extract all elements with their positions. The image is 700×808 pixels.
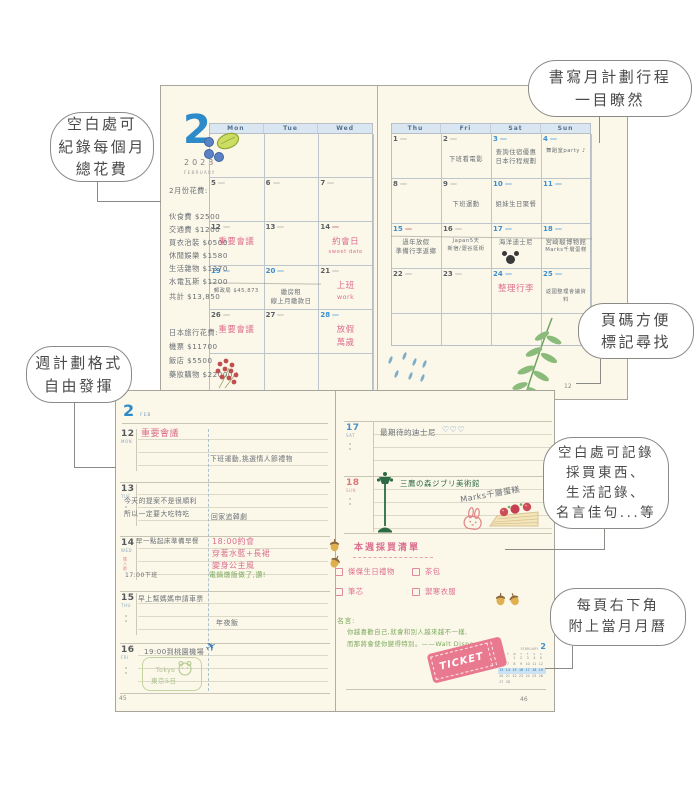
cell-date-row: 24 [493,270,539,278]
monthly-cell: 25返國整理會議資料 [541,269,592,314]
monthly-cell: 24整理行李 [491,269,542,314]
handwritten-note: 早一點起床準備早餐 [136,538,199,546]
weekly-header-rule [122,423,328,424]
raindrops-doodle [383,350,435,386]
handwritten-note: 準備行李返鄉 [393,247,439,256]
callout-connector [97,182,98,202]
date-number: 18 [543,225,553,233]
cell-notes: 姐妹生日聚餐 [493,200,539,209]
callout-connector [505,549,605,550]
handwritten-note: 舞蹈室party ♪ [543,148,589,156]
cell-date-row: 8 [393,180,439,188]
handwritten-note: 下班看電影 [443,155,489,164]
ruled-line [374,489,552,490]
red-flower-cluster-doodle [211,358,249,392]
date-number: 21 [320,267,330,275]
cell-date-row: 16 [443,225,489,233]
monthly-cell: 1 [391,134,442,179]
date-number: 8 [393,180,398,188]
calendar-header-cell: Wed [318,123,373,133]
cell-date-row: 1 [393,135,439,143]
date-number: 11 [543,180,553,188]
monthly-cell [391,314,442,346]
callout-line: 採買東西、 [566,463,646,483]
date-number: 26 [211,311,221,319]
date-lunar-scribble [505,273,512,275]
monthly-cell: 23 [441,269,492,314]
callout-connector [97,201,161,202]
spread-gutter [377,86,378,399]
callout-line: 空白處可 [67,113,137,136]
date-number: 5 [211,179,216,187]
date-number: 7 [320,179,325,187]
cell-date-row: 6 [266,179,317,187]
date-lunar-scribble [277,314,284,316]
callout-mini-calendar: 每頁右下角附上當月月曆 [550,588,686,646]
handwritten-note: 返國整理會議資料 [543,289,589,305]
monthly-cell [441,314,492,346]
row-separator [120,591,330,592]
handwritten-note: 變身公主風 [212,561,255,571]
calendar-header-cell: Tue [264,123,319,133]
row-separator [120,693,330,694]
handwritten-note: 下班運動,挑選情人節禮物 [210,455,293,463]
handwritten-note: 過年放假 [393,238,439,247]
date-column-line [136,429,137,471]
callout-line: 標記尋找 [601,331,671,354]
mini-calendar-day [538,680,545,686]
monthly-cell: 7 [318,178,374,222]
raindrop [394,370,400,379]
date-lunar-scribble [450,138,457,140]
handwritten-note: 海洋迪士尼 [493,238,539,247]
row-separator [120,482,330,483]
date-column-line [136,593,137,635]
cell-date-row: 10 [493,180,539,188]
date-lunar-scribble [223,226,230,228]
cell-notes: 約會日sweet date [320,236,371,257]
callout-line: 每頁右下角 [577,596,660,617]
shopping-title-underline [353,557,433,558]
handwritten-note: 重要會議 [211,324,262,337]
ruled-line [138,465,328,466]
quote-label: 名言: [337,617,355,625]
date-lunar-scribble [505,183,512,185]
date-lunar-scribble [405,228,412,230]
handwritten-note: 重要會議 [141,429,179,440]
day-sub-scribble [125,506,127,508]
callout-monthly-plan: 書寫月計劃行程一目瞭然 [528,60,692,117]
handwritten-note: ♡♡♡ [442,425,465,435]
ruled-line [374,460,552,461]
cell-date-row: 26 [211,311,262,319]
day-sub-scribble [349,503,351,505]
cell-notes: 下班看電影 [443,155,489,164]
handwritten-note: 整理行李 [493,283,539,296]
callout-connector [74,467,116,468]
shopping-item-label: 禦寒衣服 [425,588,456,597]
handwritten-note: 三鷹の森ジブリ美術館 [400,479,480,488]
date-lunar-scribble [450,183,457,185]
tokyo-trip-frame [142,657,202,691]
date-lunar-scribble [218,182,225,184]
cell-notes: 宮崎駿博物館Marks千層蛋糕 [543,238,589,255]
cell-date-row: 22 [393,270,439,278]
day-sub-scribble [125,667,127,669]
monthly-cell [264,134,320,178]
monthly-cell: 17海洋迪士尼 [491,224,542,269]
monthly-cell: 28放假萬歲 [318,310,374,354]
monthly-cell: 20繳房租線上月繳款日 [264,266,320,310]
date-number: 28 [320,311,330,319]
handwritten-note: 電鍋燉飯做了,讚! [209,571,266,579]
mini-calendar-day: 28 [505,680,512,686]
cell-date-row: 21 [320,267,371,275]
callout-connector [604,529,605,550]
raindrop [422,360,428,369]
monthly-cell: 2下班看電影 [441,134,492,179]
handwritten-note: 姐妹生日聚餐 [493,200,539,209]
handwritten-note: 萬歲 [320,337,371,350]
date-lunar-scribble [277,270,284,272]
expense-note: 休閒娛樂 $1580 [169,252,228,261]
monthly-spread-page: 2 2023 FEBRUARY 12 MonTueWed56712重要會議131… [160,85,628,400]
handwritten-note: 17:00下班 [125,572,158,579]
mickey-head-icon [501,251,521,265]
date-number: 25 [543,270,553,278]
cell-date-row: 3 [493,135,539,143]
date-number: 17 [493,225,503,233]
monthly-cell: 16Japan5天新宿/澀谷逛街 [441,224,492,269]
cell-notes: 過年放假準備行李返鄉 [393,238,439,257]
day-sub-scribble [125,620,127,622]
handwritten-note: 所以一定要大吃特吃 [124,510,190,518]
date-lunar-scribble [273,182,280,184]
expense-note: 生活雜物 $1370 [169,265,228,274]
cell-date-row: 5 [211,179,262,187]
handwritten-note: 上班 [320,280,371,293]
shopping-checkbox [335,588,343,596]
callout-line: 空白處可記錄 [558,443,654,463]
cell-date-row: 2 [443,135,489,143]
date-number: 15 [393,225,403,233]
raindrop [388,356,394,365]
date-lunar-scribble [277,226,284,228]
handwritten-note: 約會日 [320,236,371,249]
expense-note: 日本旅行花費: [169,329,218,338]
acorns-doodle [328,537,344,569]
monthly-cell: 8 [391,179,442,224]
monthly-cell: 6 [264,178,320,222]
date-lunar-scribble [455,273,462,275]
handwritten-note: 18:00約會 [212,537,255,547]
weekly-day-label: SUN [346,489,356,494]
shopping-list-title: 本週採買清單 [354,543,420,554]
date-lunar-scribble [332,226,339,228]
callout-line: 附上當月月曆 [569,617,668,638]
monthly-cell: 14約會日sweet date [318,222,374,266]
date-lunar-scribble [332,314,339,316]
date-number: 2 [443,135,448,143]
ruled-line [138,452,328,453]
row-separator [344,421,552,422]
monthly-cell: 3查詢住宿優惠日本行程規劃 [491,134,542,179]
handwritten-note: 線上月繳款日 [266,297,317,306]
ruled-line [138,629,328,630]
cell-date-row: 9 [443,180,489,188]
handwritten-note: Marks千層蛋糕 [543,247,589,255]
handwritten-note: 回家追韓劇 [211,513,247,521]
callout-connector [600,359,601,384]
expense-note: 交通費 $1200 [169,226,220,235]
date-lunar-scribble [455,228,462,230]
day-sub-scribble [349,443,351,445]
date-lunar-scribble [500,138,507,140]
monthly-cell: 9下班運動 [441,179,492,224]
blueberries-and-lime-doodle [201,129,249,169]
mini-calendar-week-row: 2728 [498,680,546,686]
cell-date-row: 17 [493,225,539,233]
expense-note: 飯店 $5500 [169,357,213,366]
weekly-month-label: FEB [140,413,152,418]
day-sub-scribble [349,498,351,500]
expense-note: 買衣治裝 $0500 [169,239,228,248]
date-lunar-scribble [332,270,339,272]
date-lunar-scribble [400,138,407,140]
handwritten-note: 查詢住宿優惠 [493,148,539,157]
date-lunar-scribble [400,183,407,185]
cell-date-row: 14 [320,223,371,231]
ruled-line [138,616,328,617]
cell-date-row: 7 [320,179,371,187]
day-sub-scribble [125,615,127,617]
handwritten-note: 新宿/澀谷逛街 [443,246,489,254]
mini-calendar-day [524,680,531,686]
bottom-margin-line [346,689,546,690]
acorns-doodle [494,591,522,609]
date-number: 3 [493,135,498,143]
calendar-header-cell: Fri [441,123,491,133]
cell-date-row: 4 [543,135,589,143]
handwritten-note: work [320,293,371,302]
cell-notes: 放假萬歲 [320,324,371,350]
monthly-cell: 22 [391,269,442,314]
callout-blank-space: 空白處可記錄採買東西、生活記錄、名言佳句...等 [543,437,669,529]
monthly-cell: 18宮崎駿博物館Marks千層蛋糕 [541,224,592,269]
calendar-header-cell: Thu [391,123,441,133]
monthly-cell: 15過年放假準備行李返鄉 [391,224,442,269]
monthly-cell [318,354,374,391]
handwritten-note: 繳房租 [266,288,317,297]
cell-notes: 上班work [320,280,371,302]
weekly-day-label: THU [121,604,131,609]
ruled-line [138,507,328,508]
cell-date-row: 25 [543,270,589,278]
shopping-item-label: 茶包 [425,568,441,577]
cell-date-row: 27 [266,311,317,319]
mini-calendar-header: FEBRUARY2 [498,643,546,651]
mini-calendar-day [511,680,518,686]
weekly-left-page-number: 45 [119,695,127,702]
cell-notes: 重要會議 [211,324,262,337]
weekly-day-sublabel: 情人節 [123,557,128,571]
cell-date-row: 15 [393,225,439,233]
ruled-line [138,494,328,495]
day-sub-scribble [349,448,351,450]
cell-notes: 繳房租線上月繳款日 [266,288,317,307]
callout-line: 一目瞭然 [575,89,645,112]
date-number: 16 [443,225,453,233]
cell-date-row: 20 [266,267,317,275]
airplane-icon: ✈ [203,638,220,656]
callout-line: 自由發揮 [44,375,114,398]
callout-line: 書寫月計劃行程 [549,66,672,89]
weekly-day-label: MON [121,440,132,445]
handwritten-note: 年夜飯 [216,619,239,627]
date-column-line [373,422,374,532]
date-lunar-scribble [405,273,412,275]
date-number: 4 [543,135,548,143]
cell-date-row: 23 [443,270,489,278]
callout-line: 生活記錄、 [566,483,646,503]
date-lunar-scribble [555,228,562,230]
date-lunar-scribble [327,182,334,184]
weekly-month-number: 2 [123,403,134,419]
calendar-header-cell: Sun [541,123,591,133]
cell-notes: 舞蹈室party ♪ [543,148,589,156]
raindrop [420,374,426,383]
date-lunar-scribble [223,314,230,316]
mini-calendar-month-number: 2 [540,643,546,651]
date-number: 10 [493,180,503,188]
cell-date-row: 28 [320,311,371,319]
weekly-day-label: SAT [346,434,355,439]
callout-page-number: 頁碼方便標記尋找 [578,303,694,359]
callout-connector [545,668,573,669]
handwritten-note: 穿著水藍+長裙 [212,549,270,559]
monthly-cell: 10姐妹生日聚餐 [491,179,542,224]
calendar-header-row: ThuFriSatSun [391,123,591,134]
callout-weekly-format: 週計劃格式自由發揮 [26,346,132,403]
callout-line: 頁碼方便 [601,309,671,332]
raindrop [402,352,408,361]
cell-notes: Japan5天新宿/澀谷逛街 [443,238,489,254]
mini-calendar-title: FEBRUARY [521,647,539,651]
handwritten-note: 早上幫媽媽申請車票 [138,595,204,603]
cell-date-row: 18 [543,225,589,233]
bunny-stamp-doodle [462,507,484,533]
shopping-checkbox [412,568,420,576]
cell-notes: 海洋迪士尼 [493,238,539,247]
weekly-day-label: WED [121,549,132,554]
date-number: 6 [266,179,271,187]
ruled-line [374,447,552,448]
date-lunar-scribble [550,138,557,140]
cell-notes: 返國整理會議資料 [543,289,589,305]
monthly-cell: 11 [541,179,592,224]
expense-note: 機票 $11700 [169,343,218,352]
expense-note: 水電瓦斯 $1200 [169,278,228,287]
weekly-right-page-number: 46 [520,696,528,703]
row-separator [120,643,330,644]
callout-line: 週計劃格式 [35,352,123,375]
shopping-item-label: 傑傑生日禮物 [348,568,395,577]
cell-notes: 查詢住宿優惠日本行程規劃 [493,148,539,167]
street-lamp-doodle [375,471,395,533]
callout-line: 名言佳句...等 [556,503,656,523]
row-separator [344,533,552,534]
handwritten-note: 最期待的迪士尼 [380,428,436,437]
callout-connector [572,646,573,669]
handwritten-note: sweet date [320,249,371,257]
date-number: 1 [393,135,398,143]
date-lunar-scribble [555,183,562,185]
handwritten-note: 下班運動 [443,200,489,209]
handwritten-note: 日本行程規劃 [493,157,539,166]
quote-line: 你越喜歡自己,就會和別人越來越不一樣, [347,629,468,637]
expense-note: 2月份花費: [169,187,208,196]
callout-line: 總花費 [76,158,129,181]
cell-notes: 下班運動 [443,200,489,209]
date-number: 14 [320,223,330,231]
monthly-cell: 4舞蹈室party ♪ [541,134,592,179]
day-sub-scribble [125,672,127,674]
date-number: 13 [266,223,276,231]
raindrop [408,372,414,381]
weekly-spread-page: 2 FEB 本週採買清單 名言: 你越喜歡自己,就會和別人越來越不一樣, 而那將… [115,390,555,712]
callout-connector [74,403,75,468]
cell-notes: 整理行李 [493,283,539,296]
planner-promo-illustration: 2 2023 FEBRUARY 12 MonTueWed56712重要會議131… [0,0,700,808]
date-number: 23 [443,270,453,278]
monthly-cell: 27 [264,310,320,354]
date-number: 9 [443,180,448,188]
date-number: 27 [266,311,276,319]
cell-date-row: 13 [266,223,317,231]
date-number: 20 [266,267,276,275]
strawberry-crepe-cake-doodle [487,499,541,529]
mini-calendar-day: 27 [498,680,505,686]
monthly-cell [318,134,374,178]
handwritten-note: 今天的提案不是很順利 [124,497,197,505]
callout-expense: 空白處可紀錄每個月總花費 [50,112,154,182]
mini-calendar-day [531,680,538,686]
shopping-checkbox [412,588,420,596]
monthly-cell: 21上班work [318,266,374,310]
handwritten-note: Japan5天 [443,238,489,246]
monthly-cell [264,354,320,391]
cell-date-row: 11 [543,180,589,188]
expense-note: 共計 $13,850 [169,293,220,302]
handwritten-note: 放假 [320,324,371,337]
weekly-day-label: FRI [121,656,129,661]
date-lunar-scribble [555,273,562,275]
date-number: 24 [493,270,503,278]
handwritten-note: 19:00到桃園機場 [144,648,204,656]
calendar-header-cell: Sat [491,123,541,133]
date-lunar-scribble [505,228,512,230]
date-number: 22 [393,270,403,278]
monthly-cell: 13 [264,222,320,266]
shopping-item-label: 筆芯 [348,588,364,597]
callout-connector [599,117,600,143]
callout-connector [576,383,601,384]
callout-line: 紀錄每個月 [58,136,146,159]
raindrop [412,358,418,367]
mini-calendar-day [518,680,525,686]
expense-note: 伙食費 $2500 [169,213,220,222]
